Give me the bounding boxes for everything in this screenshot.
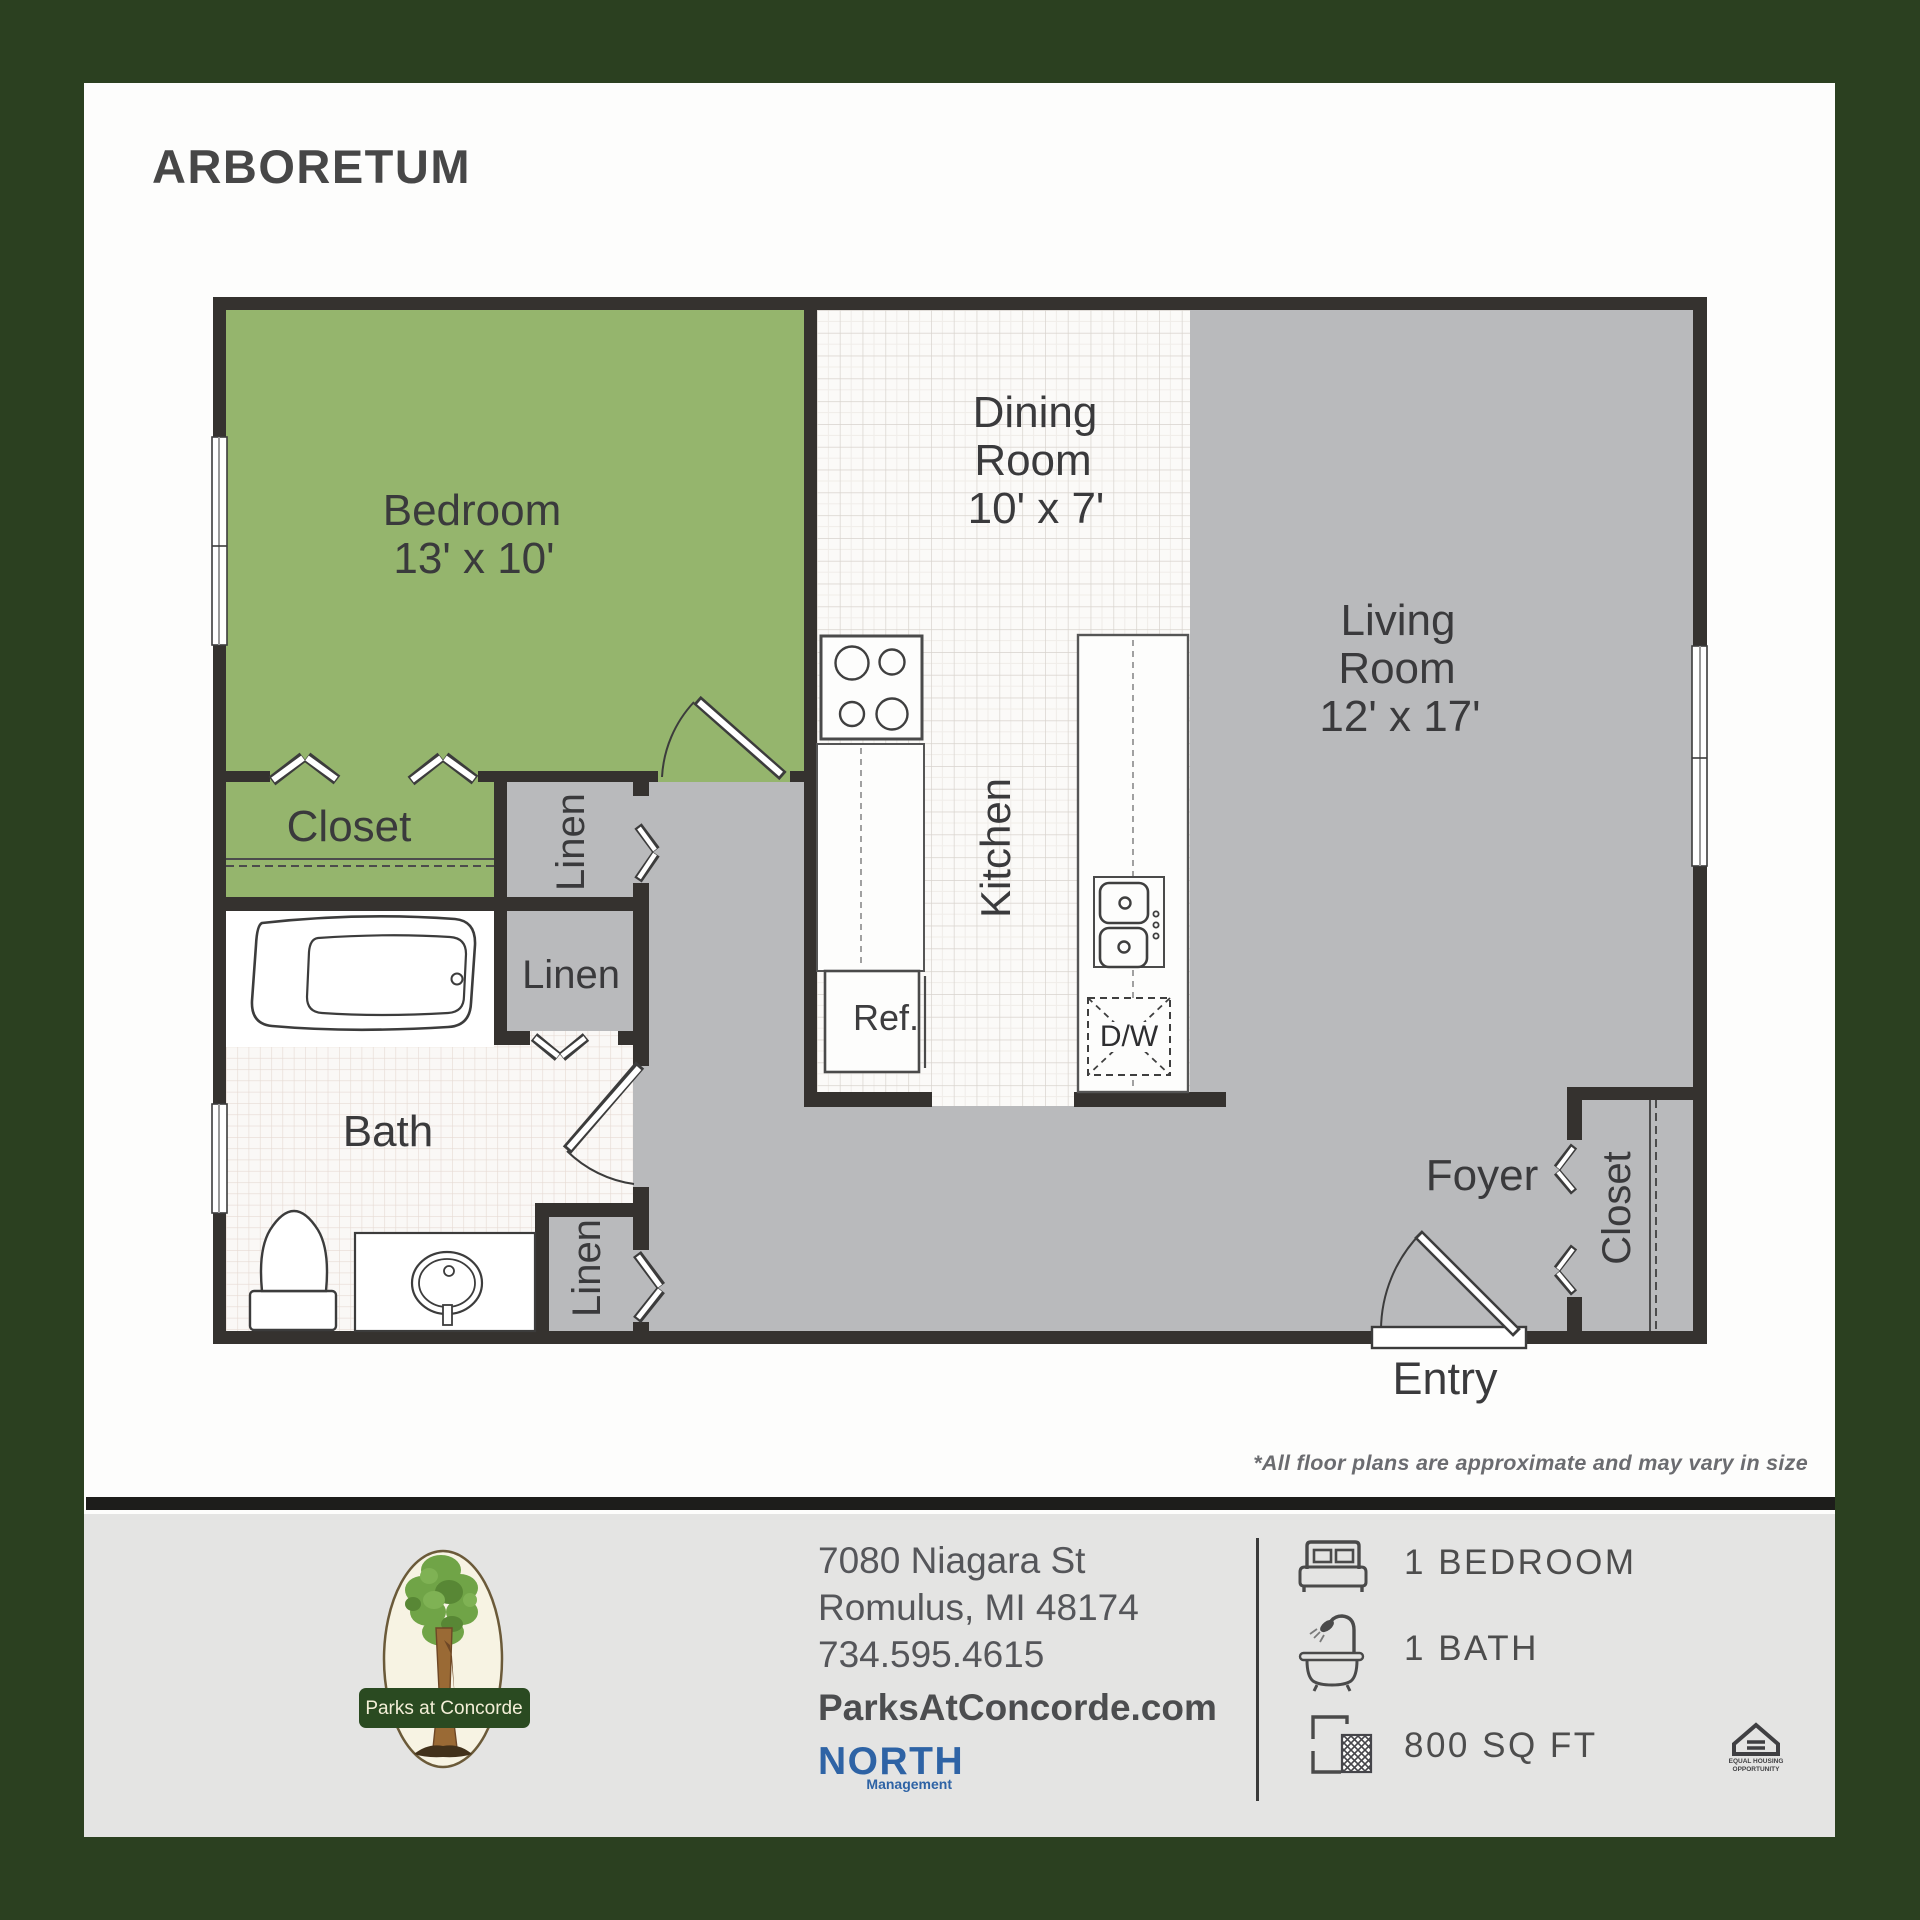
svg-text:Linen: Linen (549, 793, 593, 891)
svg-text:Parks at Concorde: Parks at Concorde (365, 1698, 522, 1719)
svg-text:Linen: Linen (565, 1219, 609, 1317)
svg-text:Room: Room (1338, 644, 1455, 693)
svg-text:Foyer: Foyer (1426, 1151, 1538, 1200)
svg-text:*All floor plans are approxima: *All floor plans are approximate and may… (1253, 1451, 1808, 1475)
svg-text:Room: Room (974, 436, 1091, 485)
svg-text:Entry: Entry (1392, 1353, 1498, 1404)
svg-text:Bedroom: Bedroom (383, 486, 562, 535)
svg-text:800 SQ FT: 800 SQ FT (1404, 1726, 1598, 1765)
svg-text:Closet: Closet (1595, 1151, 1639, 1264)
svg-text:OPPORTUNITY: OPPORTUNITY (1733, 1766, 1781, 1773)
svg-text:1 BATH: 1 BATH (1404, 1629, 1539, 1668)
svg-text:EQUAL HOUSING: EQUAL HOUSING (1729, 1758, 1784, 1765)
svg-text:1 BEDROOM: 1 BEDROOM (1404, 1543, 1637, 1582)
svg-text:10' x 7': 10' x 7' (968, 484, 1105, 533)
svg-text:ARBORETUM: ARBORETUM (152, 140, 471, 193)
svg-text:Closet: Closet (287, 802, 412, 851)
svg-text:Dining: Dining (973, 388, 1098, 437)
svg-text:Living: Living (1341, 596, 1456, 645)
svg-text:Ref.: Ref. (853, 997, 919, 1038)
svg-text:Management: Management (866, 1776, 952, 1792)
svg-text:Linen: Linen (522, 953, 620, 997)
svg-text:7080 Niagara St: 7080 Niagara St (818, 1540, 1086, 1581)
svg-text:Romulus, MI 48174: Romulus, MI 48174 (818, 1587, 1139, 1628)
svg-text:734.595.4615: 734.595.4615 (818, 1634, 1044, 1675)
svg-text:Kitchen: Kitchen (972, 778, 1019, 918)
svg-text:D/W: D/W (1100, 1020, 1159, 1053)
svg-text:ParksAtConcorde.com: ParksAtConcorde.com (818, 1687, 1217, 1728)
svg-text:12' x 17': 12' x 17' (1319, 692, 1480, 741)
svg-text:Bath: Bath (343, 1107, 434, 1156)
svg-text:13' x 10': 13' x 10' (393, 534, 554, 583)
